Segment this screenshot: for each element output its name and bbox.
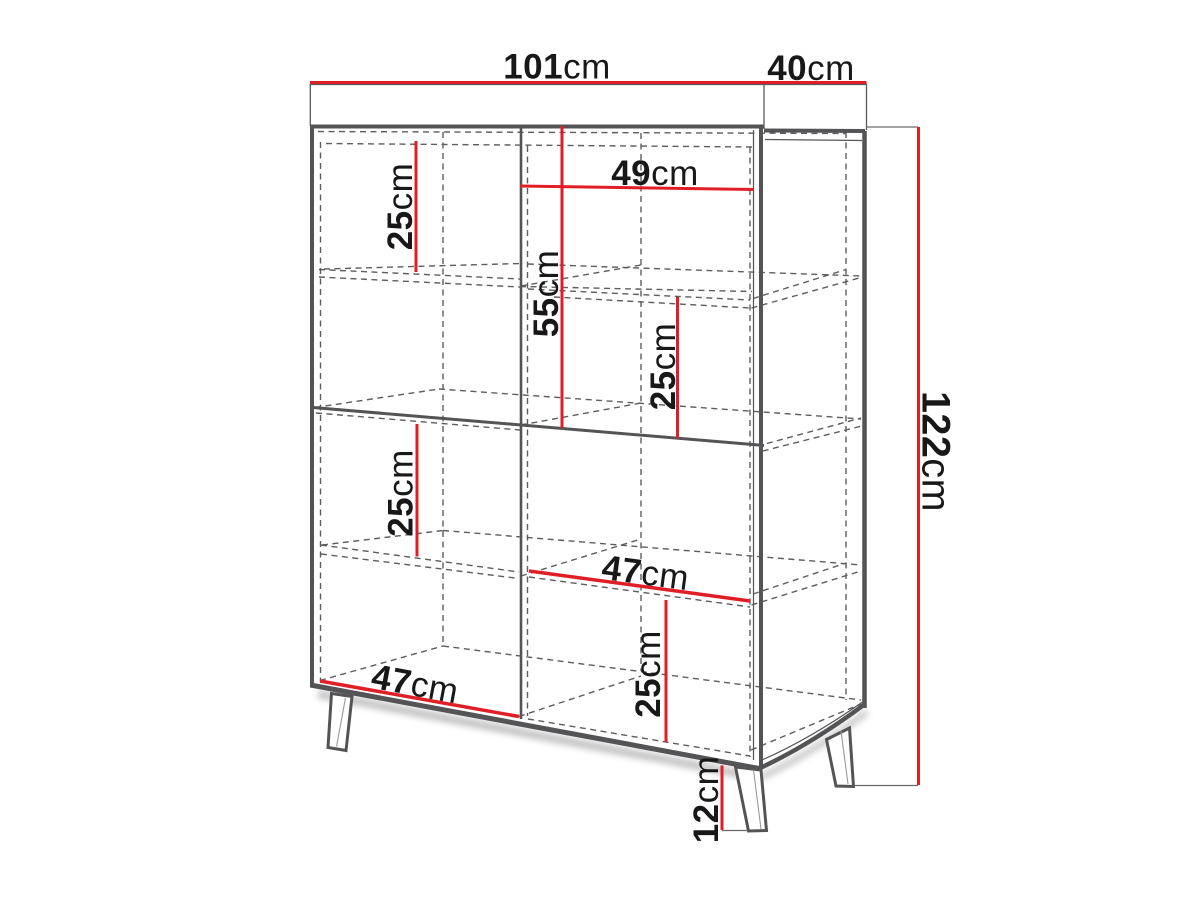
svg-text:55cm: 55cm <box>527 250 566 338</box>
svg-text:12cm: 12cm <box>687 756 726 844</box>
svg-text:122cm: 122cm <box>914 391 958 512</box>
svg-text:25cm: 25cm <box>629 630 668 718</box>
svg-text:40cm: 40cm <box>767 49 855 88</box>
svg-text:25cm: 25cm <box>381 163 420 251</box>
svg-text:25cm: 25cm <box>644 323 683 411</box>
svg-text:25cm: 25cm <box>382 449 421 537</box>
svg-text:49cm: 49cm <box>611 154 699 193</box>
svg-text:101cm: 101cm <box>503 48 611 87</box>
svg-text:47cm: 47cm <box>600 548 692 598</box>
